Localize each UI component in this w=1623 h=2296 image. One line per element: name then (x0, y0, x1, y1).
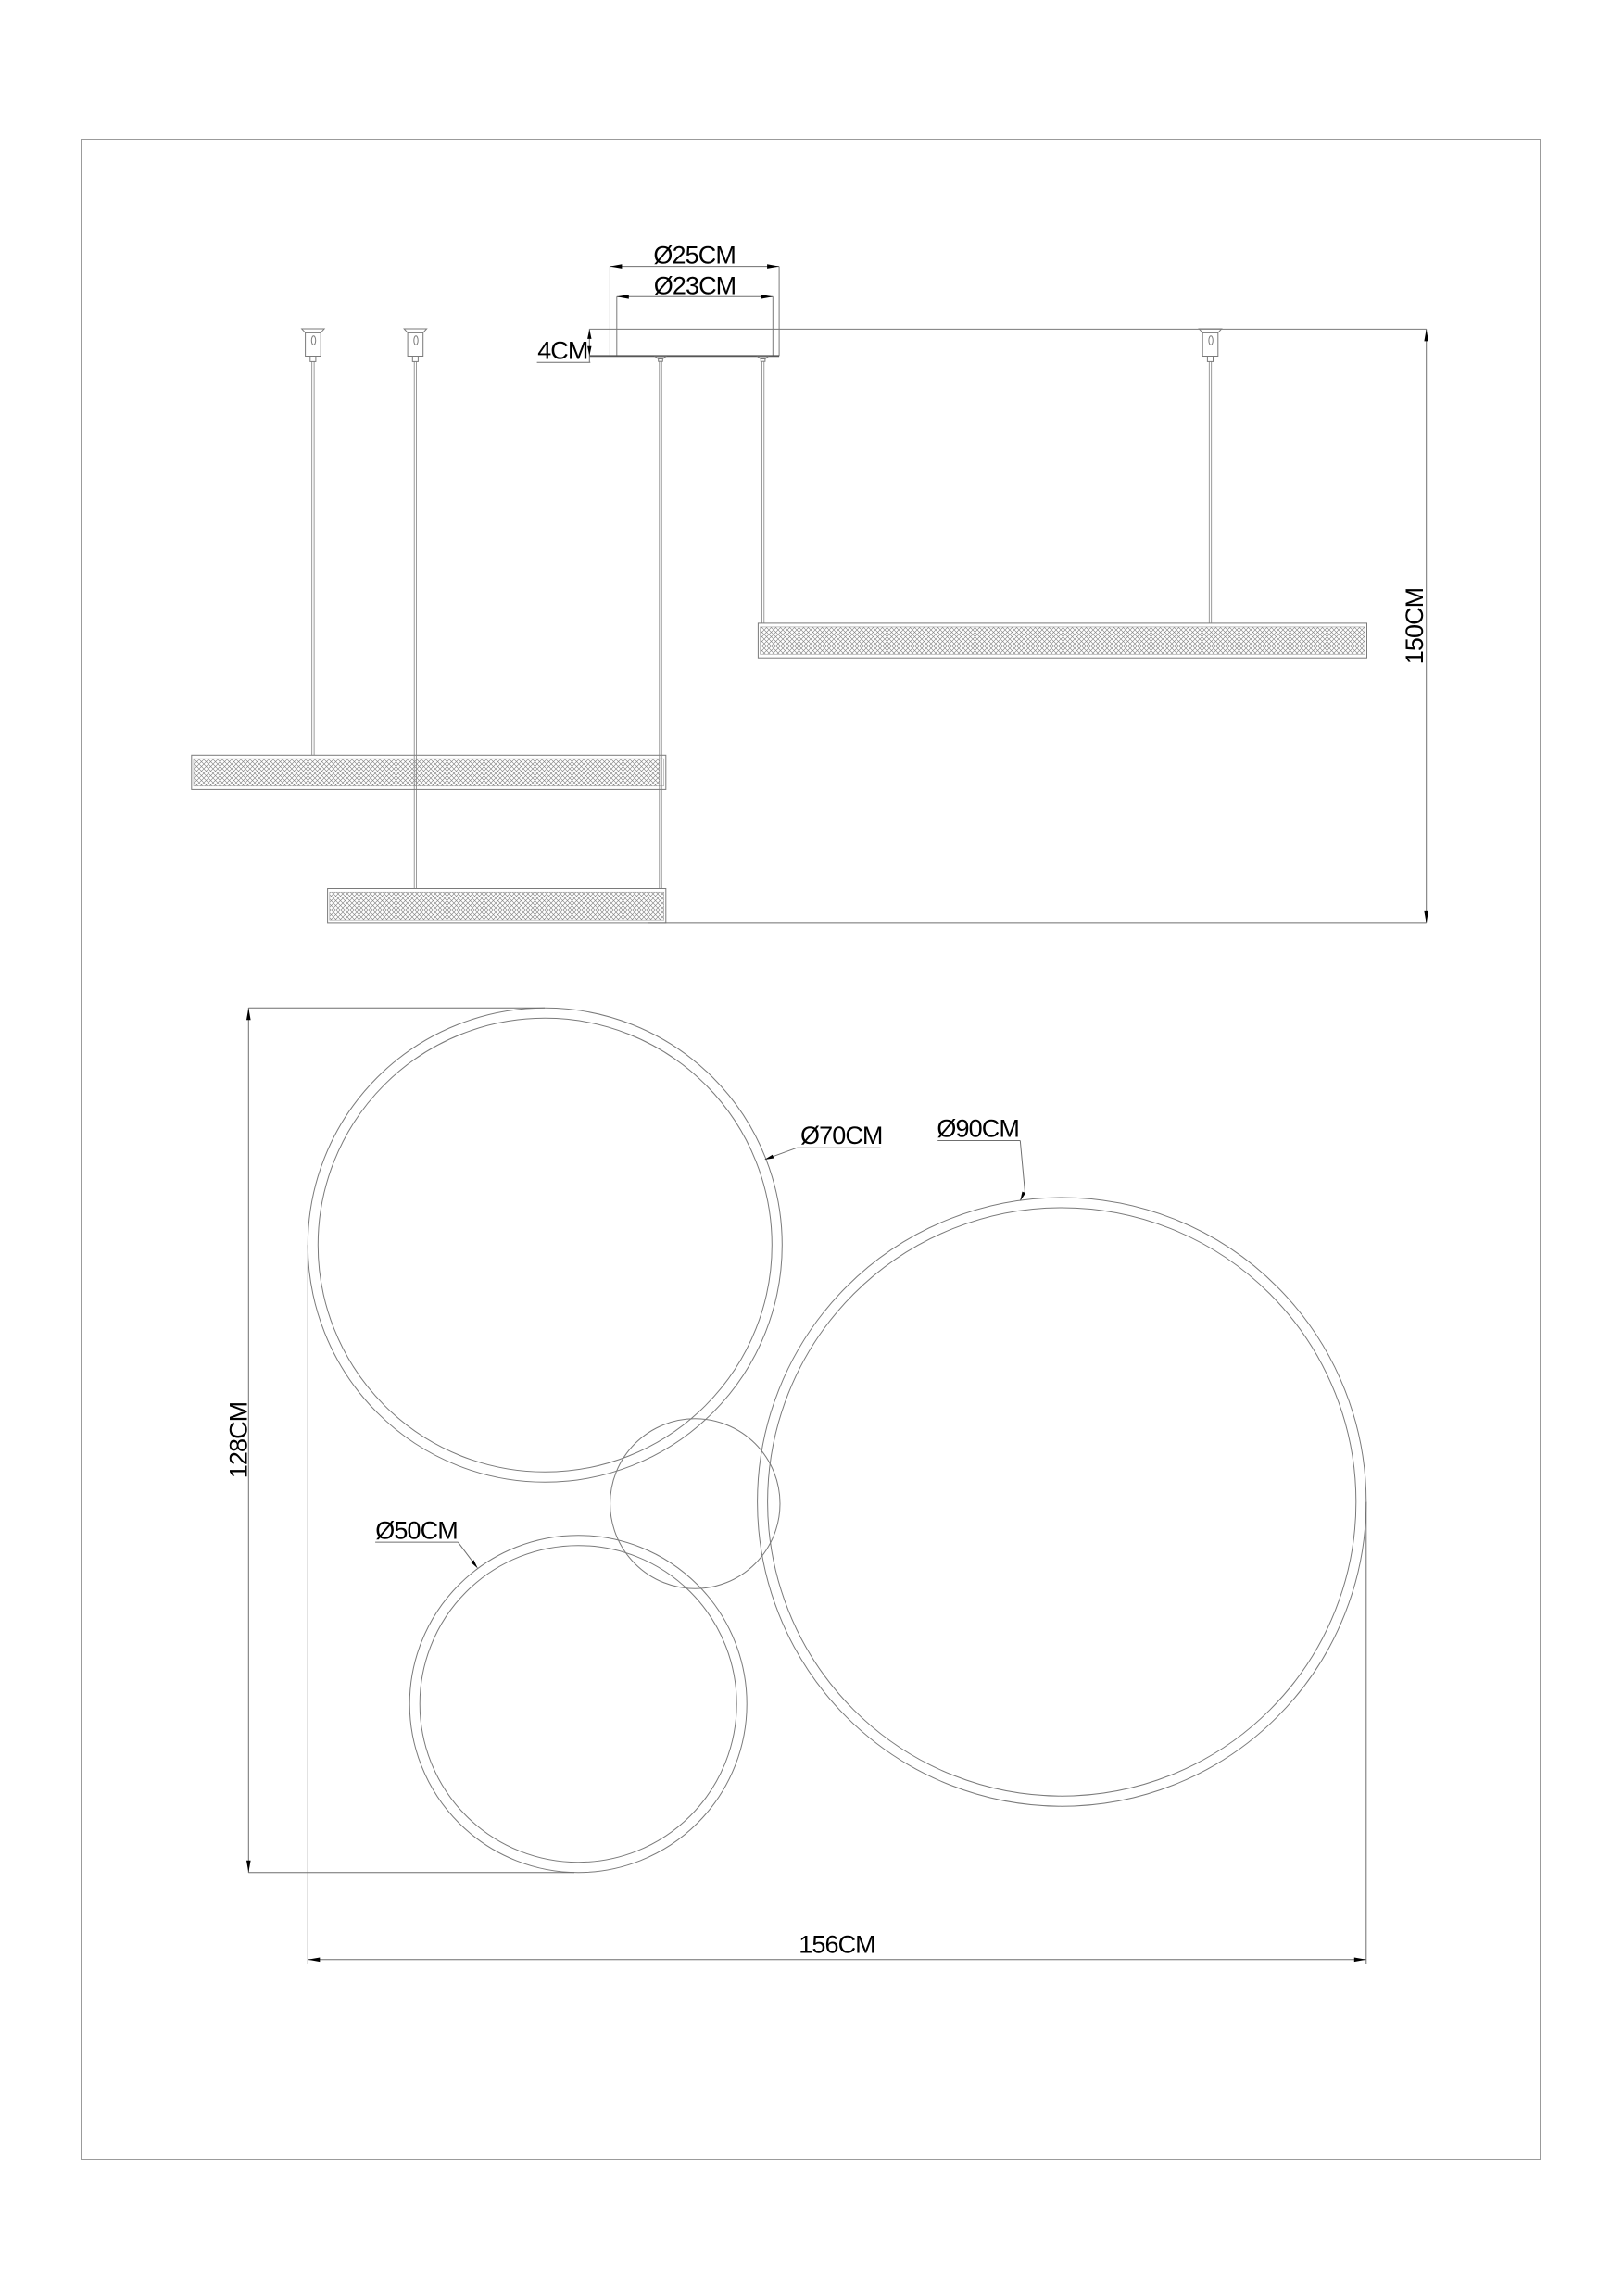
svg-text:Ø90CM: Ø90CM (937, 1115, 1019, 1143)
svg-text:Ø25CM: Ø25CM (653, 242, 736, 270)
svg-text:Ø23CM: Ø23CM (654, 272, 736, 300)
svg-text:Ø70CM: Ø70CM (800, 1122, 883, 1149)
svg-text:150CM: 150CM (1401, 588, 1428, 665)
svg-text:4CM: 4CM (537, 337, 587, 365)
svg-text:Ø50CM: Ø50CM (375, 1517, 458, 1545)
svg-text:128CM: 128CM (225, 1402, 253, 1479)
svg-text:156CM: 156CM (799, 1931, 875, 1959)
